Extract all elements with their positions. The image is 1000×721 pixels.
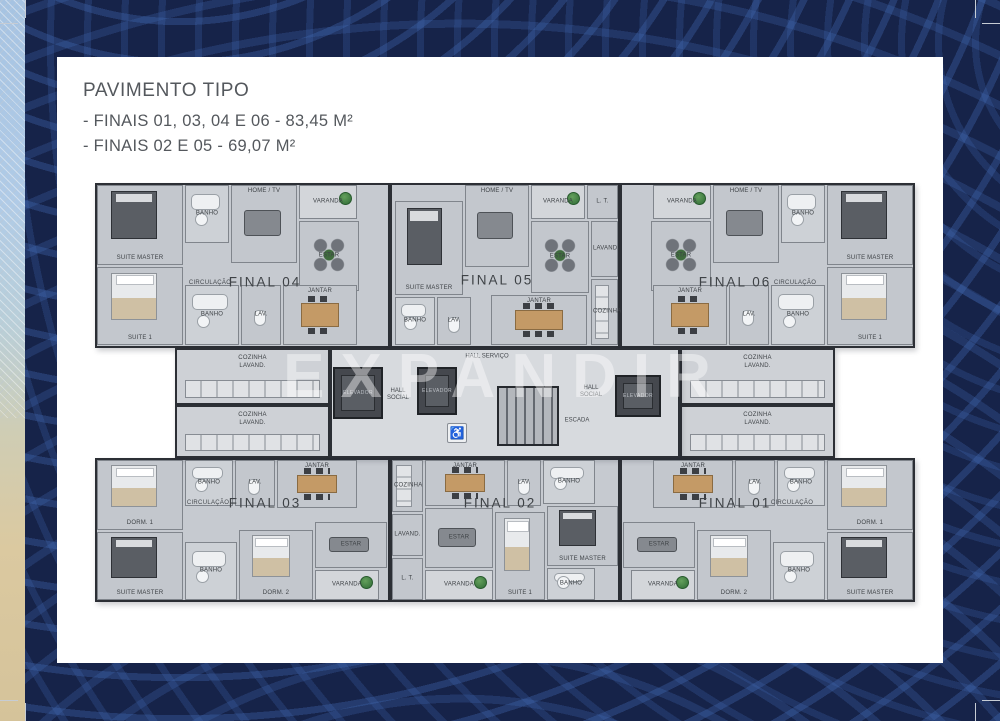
room-label: VARANDA [533, 199, 583, 206]
room-label: BANHO [779, 480, 823, 487]
bed-dark-furniture-icon [841, 537, 886, 578]
room-lavand: LAVAND. [392, 514, 423, 556]
room-banho: BANHO [543, 460, 595, 504]
room-label: ESTAR [625, 542, 693, 549]
table-furniture-icon [301, 303, 338, 326]
bed-light-furniture-icon [841, 273, 886, 320]
room-lav: LAV. [241, 285, 281, 345]
room-label: SUITE MASTER [829, 255, 911, 262]
room-label: BANHO [187, 568, 235, 575]
table-furniture-icon [671, 303, 708, 326]
room-label: JANTAR [655, 463, 731, 470]
room-suite-master: SUITE MASTER [827, 532, 913, 600]
area-line-1: - FINAIS 01, 03, 04 E 06 - 83,45 M² [83, 109, 353, 134]
page-title: PAVIMENTO TIPO [83, 80, 353, 102]
room-banho: BANHO [781, 185, 825, 243]
room-varanda: VARANDA [653, 185, 711, 219]
room-label: BANHO [187, 312, 237, 319]
room-label: BANHO [773, 312, 823, 319]
room-label: ESTAR [533, 254, 587, 261]
room-label: LAVAND. [394, 532, 421, 539]
core-label-hall-servi-o: HALL SERVIÇO [465, 353, 508, 360]
table-furniture-icon [673, 475, 714, 493]
room-label: SUITE MASTER [99, 590, 181, 597]
bath-furniture-icon [778, 294, 813, 310]
bed-light-furniture-icon [111, 465, 156, 507]
unit-label-final-04: FINAL 04 [229, 275, 302, 290]
room-banho: BANHO [185, 542, 237, 600]
room-estar: ESTAR [623, 522, 695, 568]
room-label: DORM. 2 [699, 590, 769, 597]
room-label: SUITE 1 [99, 335, 181, 342]
bed-light-furniture-icon [710, 535, 749, 577]
unit-final-04-annex: COZINHA LAVAND. [175, 348, 330, 405]
bed-dark-furniture-icon [111, 191, 156, 239]
room-dorm-2: DORM. 2 [697, 530, 771, 600]
table-furniture-icon [297, 475, 338, 493]
room-label: JANTAR [493, 298, 585, 305]
room-suite-master: SUITE MASTER [547, 506, 618, 566]
bed-light-furniture-icon [252, 535, 291, 577]
room-label: DORM. 1 [99, 520, 181, 527]
bath-furniture-icon [192, 294, 227, 310]
sofa-furniture-icon [726, 210, 763, 236]
room-label: LAV. [509, 480, 539, 487]
room-label-cozinha-lavand: COZINHA LAVAND. [177, 412, 328, 427]
crop-mark [975, 703, 976, 721]
room-label: BANHO [187, 480, 231, 487]
room-l-t: L. T. [587, 185, 618, 219]
room-l-t: L. T. [392, 558, 423, 600]
room-label: L. T. [589, 199, 616, 206]
room-label: ESTAR [317, 542, 385, 549]
room-lavand: LAVAND. [591, 221, 618, 277]
floor-plan: EXPANDIR COZINHA LAVAND.SUITE MASTERSUIT… [95, 183, 915, 602]
room-varanda: VARANDA [299, 185, 357, 219]
room-label: VARANDA [655, 199, 709, 206]
room-estar: ESTAR [531, 221, 589, 293]
room-dorm-1: DORM. 1 [827, 460, 913, 530]
room-label: HOME / TV [715, 188, 777, 195]
bed-light-furniture-icon [111, 273, 156, 320]
bed-dark-furniture-icon [111, 537, 156, 578]
room-label: ESTAR [653, 253, 709, 260]
circulacao-label-final-04: CIRCULAÇÃO [189, 280, 231, 286]
bath-furniture-icon [784, 467, 815, 479]
room-varanda: VARANDA [315, 570, 379, 600]
room-label: LAV. [439, 318, 469, 325]
title-block: PAVIMENTO TIPO - FINAIS 01, 03, 04 E 06 … [83, 80, 353, 159]
elevator-2: ELEVADOR [417, 367, 457, 415]
bed-dark-furniture-icon [407, 208, 443, 265]
crop-mark [0, 23, 18, 24]
room-label: JANTAR [279, 463, 355, 470]
room-estar: ESTAR [425, 508, 493, 568]
circulacao-label-final-03: CIRCULAÇÃO [187, 500, 229, 506]
sofa-furniture-icon [477, 212, 513, 239]
room-estar: ESTAR [315, 522, 387, 568]
room-label: LAV. [731, 312, 767, 319]
unit-final-06-annex: COZINHA LAVAND. [680, 348, 835, 405]
bath-furniture-icon [787, 194, 816, 210]
room-label: ESTAR [301, 253, 357, 260]
room-label-cozinha-lavand: COZINHA LAVAND. [177, 355, 328, 370]
room-label: BANHO [187, 211, 227, 218]
bed-dark-furniture-icon [841, 191, 886, 239]
bath-furniture-icon [550, 467, 584, 479]
bath-furniture-icon [192, 467, 223, 479]
unit-final-03-annex: COZINHA LAVAND. [175, 405, 330, 458]
unit-label-final-03: FINAL 03 [229, 496, 302, 511]
crop-mark [25, 0, 26, 18]
stairs [497, 386, 559, 446]
unit-final-01-annex: COZINHA LAVAND. [680, 405, 835, 458]
room-varanda: VARANDA [425, 570, 493, 600]
core-label-escada: ESCADA [565, 417, 590, 424]
room-label: VARANDA [427, 582, 491, 589]
sofa-furniture-icon [244, 210, 281, 236]
room-banho: BANHO [185, 285, 239, 345]
room-label: L. T. [394, 576, 421, 583]
room-home-tv: HOME / TV [713, 185, 779, 263]
room-label: VARANDA [301, 199, 355, 206]
room-label: LAVAND. [593, 246, 616, 253]
room-label-cozinha-lavand: COZINHA LAVAND. [682, 355, 833, 370]
bath-furniture-icon [401, 304, 427, 317]
room-suite-master: SUITE MASTER [97, 532, 183, 600]
room-jantar: JANTAR [283, 285, 357, 345]
wheelchair-icon: ♿ [447, 423, 467, 443]
unit-label-final-06: FINAL 06 [699, 275, 772, 290]
room-banho: BANHO [773, 542, 825, 600]
room-label: JANTAR [427, 463, 503, 470]
crop-mark [975, 0, 976, 18]
room-label: LAV. [243, 312, 279, 319]
room-home-tv: HOME / TV [465, 185, 529, 267]
crop-mark [982, 23, 1000, 24]
area-line-2: - FINAIS 02 E 05 - 69,07 M² [83, 134, 353, 159]
room-label: SUITE 1 [829, 335, 911, 342]
bath-furniture-icon [191, 194, 220, 210]
core-label-hall-social: HALL SOCIAL [580, 385, 602, 399]
room-jantar: JANTAR [653, 285, 727, 345]
room-label: DORM. 2 [241, 590, 311, 597]
room-label: ESTAR [427, 535, 491, 542]
room-dorm-1: DORM. 1 [97, 460, 183, 530]
room-label: COZINHA [394, 483, 421, 490]
unit-label-final-05: FINAL 05 [461, 273, 534, 288]
room-suite-1: SUITE 1 [97, 267, 183, 345]
room-label: SUITE MASTER [99, 255, 181, 262]
room-label: HOME / TV [467, 188, 527, 195]
crop-mark [25, 703, 26, 721]
room-banho: BANHO [395, 297, 435, 345]
room-cozinha: COZINHA [591, 279, 618, 345]
room-home-tv: HOME / TV [231, 185, 297, 263]
table-furniture-icon [445, 474, 486, 492]
room-label: SUITE MASTER [829, 590, 911, 597]
room-cozinha: COZINHA [392, 460, 423, 512]
room-lav: LAV. [437, 297, 471, 345]
unit-label-final-01: FINAL 01 [699, 496, 772, 511]
bath-furniture-icon [192, 551, 226, 567]
circulacao-label-final-06: CIRCULAÇÃO [774, 280, 816, 286]
unit-label-final-02: FINAL 02 [464, 496, 537, 511]
room-banho: BANHO [185, 185, 229, 243]
elevator-label: ELEVADOR [343, 390, 373, 396]
core-label-hall-social: HALL SOCIAL [387, 388, 409, 402]
room-banho: BANHO [771, 285, 825, 345]
elevator-label: ELEVADOR [422, 388, 452, 394]
room-label: LAV. [237, 480, 273, 487]
room-label: BANHO [775, 568, 823, 575]
room-label: VARANDA [633, 582, 693, 589]
crop-mark [982, 700, 1000, 701]
room-label: BANHO [549, 581, 593, 588]
elevator-label: ELEVADOR [623, 393, 653, 399]
bed-light-furniture-icon [504, 518, 530, 571]
table-furniture-icon [515, 310, 564, 329]
room-suite-master: SUITE MASTER [395, 201, 463, 295]
bath-furniture-icon [780, 551, 814, 567]
room-varanda: VARANDA [531, 185, 585, 219]
room-label-cozinha-lavand: COZINHA LAVAND. [682, 412, 833, 427]
room-label: VARANDA [317, 582, 377, 589]
room-label: COZINHA [593, 309, 616, 316]
room-label: BANHO [783, 211, 823, 218]
room-banho: BANHO [547, 568, 595, 600]
room-suite-1: SUITE 1 [827, 267, 913, 345]
circulacao-label-final-01: CIRCULAÇÃO [771, 500, 813, 506]
room-label: BANHO [545, 479, 593, 486]
left-photo-strip [0, 0, 25, 721]
room-label: SUITE MASTER [397, 285, 461, 292]
bed-light-furniture-icon [841, 465, 886, 507]
elevator-3: ELEVADOR [615, 375, 661, 417]
room-jantar: JANTAR [491, 295, 587, 345]
crop-mark [0, 700, 18, 701]
room-label: LAV. [737, 480, 773, 487]
room-label: HOME / TV [233, 188, 295, 195]
elevator-1: ELEVADOR [333, 367, 383, 419]
room-suite-master: SUITE MASTER [827, 185, 913, 265]
room-dorm-2: DORM. 2 [239, 530, 313, 600]
room-label: SUITE 1 [497, 590, 543, 597]
room-suite-master: SUITE MASTER [97, 185, 183, 265]
room-label: BANHO [397, 318, 433, 325]
room-suite-1: SUITE 1 [495, 512, 545, 600]
room-label: DORM. 1 [829, 520, 911, 527]
bed-dark-furniture-icon [559, 510, 596, 546]
room-varanda: VARANDA [631, 570, 695, 600]
room-label: SUITE MASTER [549, 556, 616, 563]
room-estar: ESTAR [299, 221, 359, 291]
room-lav: LAV. [729, 285, 769, 345]
